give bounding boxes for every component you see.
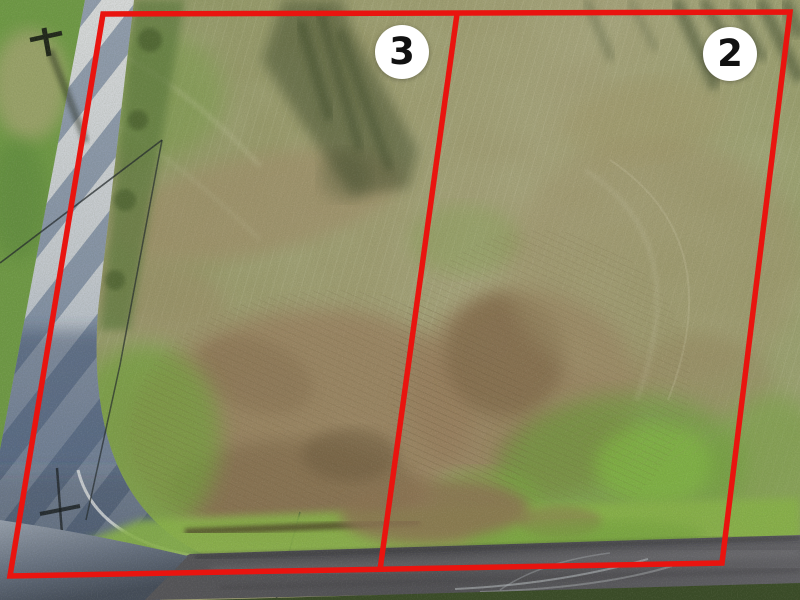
aerial-lot-photo: 3 2 [0, 0, 800, 600]
photo-background [0, 0, 800, 600]
photo-grain [0, 0, 800, 600]
lot-3-marker: 3 [375, 25, 429, 79]
lot-3-label: 3 [389, 33, 415, 70]
lot-2-marker: 2 [703, 27, 757, 81]
lot-2-label: 2 [717, 35, 743, 72]
